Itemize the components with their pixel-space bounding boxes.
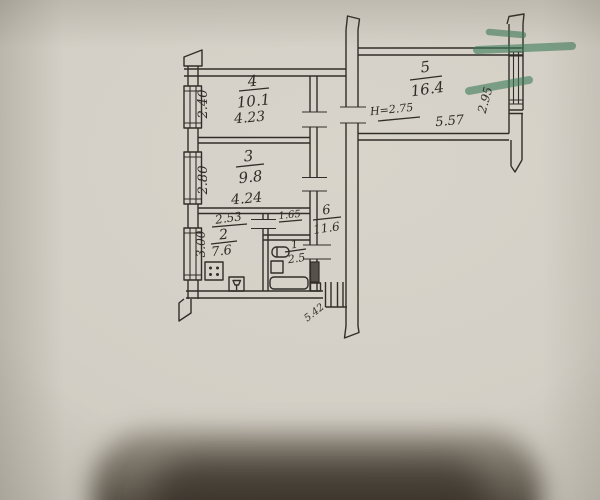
vent-duct <box>311 262 320 282</box>
room-4-number: 4 <box>246 72 258 91</box>
divider-room4-room3 <box>198 138 310 144</box>
door-opening-room5 <box>340 107 366 123</box>
room-5-width: 5.57 <box>435 113 466 131</box>
room-3-number: 3 <box>243 147 254 166</box>
marker-stroke <box>477 46 572 50</box>
room-5-number: 5 <box>419 57 431 76</box>
door-opening-bathroom <box>303 245 331 259</box>
bottom-wall <box>186 291 323 298</box>
room-4-width: 4.23 <box>232 109 266 128</box>
door-opening-room4 <box>302 112 327 127</box>
central-wall <box>345 16 360 338</box>
room-3-depth: 2.80 <box>196 166 211 196</box>
vent-duct-box <box>311 283 321 291</box>
entrance-threshold <box>326 282 348 307</box>
walls <box>179 14 524 338</box>
kitchen-number: 2 <box>217 227 229 244</box>
kitchen-area: 7.6 <box>211 243 233 260</box>
bathroom-area: 2.5 <box>286 251 306 266</box>
washbasin-icon <box>271 261 283 273</box>
entrance-dim: 5.42 <box>302 302 326 324</box>
green-marker-strokes <box>469 32 572 91</box>
hall-number: 6 <box>321 203 331 219</box>
top-wall <box>184 69 346 76</box>
room-3-width: 4.24 <box>229 190 262 209</box>
room-5-height: Н=2.75 <box>368 101 413 119</box>
marker-stroke <box>489 32 523 35</box>
kitchen-depth: 3.00 <box>194 230 208 257</box>
kitchen-sink-icon <box>229 277 244 291</box>
room-5-area: 16.4 <box>410 78 446 100</box>
hall-area: 11.6 <box>312 219 341 237</box>
door-opening-kitchen <box>251 220 276 229</box>
floor-plan-photo: 4 10.1 4.23 2.40 3 9.8 4.24 2.80 2.53 2 … <box>0 0 600 500</box>
room-4-area: 10.1 <box>236 90 271 111</box>
stove-icon <box>205 262 223 280</box>
camera-shadow-core <box>150 458 490 500</box>
bathtub-icon <box>270 277 308 289</box>
room-4-depth: 2.40 <box>196 90 211 120</box>
door-opening-room3 <box>302 178 327 192</box>
room-3-area: 9.8 <box>238 167 264 187</box>
marker-stroke <box>469 80 529 91</box>
floor-plan-drawing: 4 10.1 4.23 2.40 3 9.8 4.24 2.80 2.53 2 … <box>0 0 600 500</box>
